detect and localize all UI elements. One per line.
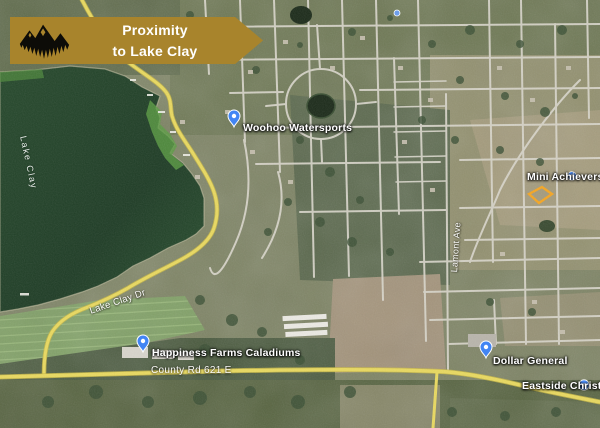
- unlabeled-poi-dot[interactable]: [394, 10, 400, 16]
- banner-title: Proximity to Lake Clay: [73, 20, 263, 62]
- banner-title-line1: Proximity: [73, 20, 237, 41]
- poi-label-dollar-general[interactable]: Dollar General: [493, 355, 568, 367]
- title-banner: Proximity to Lake Clay: [10, 17, 263, 64]
- mountains-logo-icon: [15, 21, 73, 61]
- poi-label-eastside-christian[interactable]: Eastside Christian: [522, 380, 600, 392]
- banner-title-line2: to Lake Clay: [73, 41, 237, 62]
- poi-label-mini-achievers[interactable]: Mini Achievers Day: [527, 171, 600, 183]
- road-label-county-rd-621-e: County Rd 621 E: [151, 365, 232, 376]
- poi-label-woohoo-watersports[interactable]: Woohoo Watersports: [243, 122, 352, 134]
- poi-label-happiness-farms[interactable]: Happiness Farms Caladiums: [152, 347, 301, 359]
- map-screenshot: Woohoo Watersports Mini Achievers Day Ha…: [0, 0, 600, 428]
